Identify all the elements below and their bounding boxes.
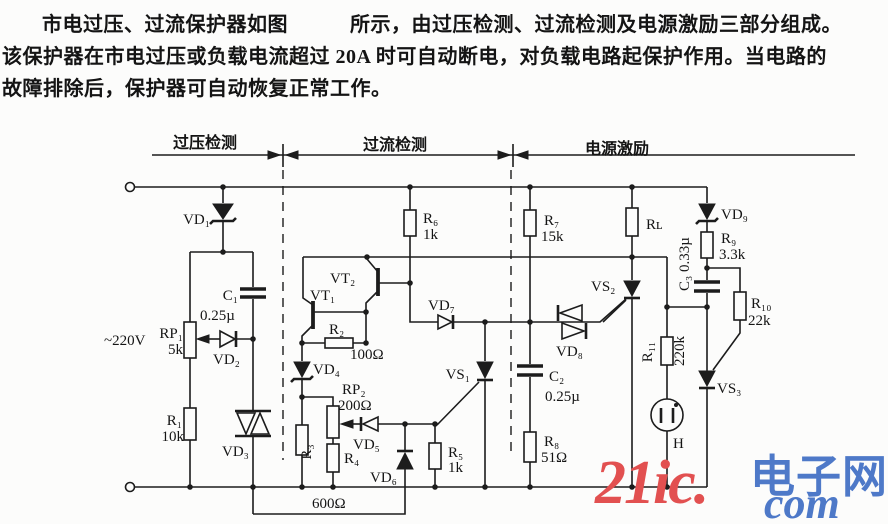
r10-resistor <box>734 292 746 320</box>
label-rp1: RP₁ <box>159 326 183 342</box>
label-vd5: VD₅ <box>353 437 380 453</box>
label-vd1: VD₁ <box>183 212 210 228</box>
arrow-right-icon <box>498 151 510 159</box>
excitation-section: R₇ 15k C₂ 0.25µ R₈ 51Ω VD₈ VS₂ Rʟ R₁₁ 22… <box>517 187 771 487</box>
vd5-diode-icon <box>363 417 378 431</box>
vd2-diode-icon <box>220 331 235 347</box>
overvoltage-section: VD₁ ~220V RP₁ 5k C₁ 0.25µ VD₂ R₁ 10k VD₃ <box>104 187 271 487</box>
rp1-potentiometer <box>184 322 196 358</box>
label-r3: R₃ <box>299 444 315 459</box>
r1-resistor <box>184 408 196 440</box>
label-r5-value: 1k <box>448 460 464 476</box>
label-shunt: 600Ω <box>312 496 346 512</box>
c3-capacitor <box>694 282 720 291</box>
vd7-diode-icon <box>438 315 452 329</box>
input-terminal-top <box>126 183 135 192</box>
rp1-wiper-arrow-icon <box>197 335 209 343</box>
label-r10-value: 22k <box>748 313 771 329</box>
label-vd4: VD₄ <box>313 362 340 378</box>
section-label-overvoltage: 过压检测 <box>173 133 237 152</box>
label-r6-value: 1k <box>423 227 439 243</box>
c1-capacitor <box>240 289 266 297</box>
arrow-left-icon <box>516 151 528 159</box>
rl-resistor <box>626 208 638 236</box>
rp2-wiper-arrow-icon <box>341 420 353 428</box>
label-rl: Rʟ <box>646 217 662 233</box>
scanned-page: 市电过压、过流保护器如图所示，由过压检测、过流检测及电源激励三部分组成。 该保护… <box>0 0 888 524</box>
label-vd8: VD₈ <box>556 344 583 360</box>
label-r9-value: 3.3k <box>719 247 746 263</box>
vs2-thyristor-icon <box>624 281 640 296</box>
label-vs3: VS₃ <box>717 381 741 397</box>
label-vt1: VT₁ <box>310 288 335 304</box>
label-r1: R₁ <box>167 413 182 429</box>
label-r9: R₉ <box>721 231 736 247</box>
label-vd7: VD₇ <box>428 298 455 314</box>
section-label-excitation: 电源激励 <box>585 139 649 158</box>
r9-resistor <box>701 232 713 258</box>
label-vd9: VD₉ <box>721 207 748 223</box>
label-r7: R₇ <box>544 213 559 229</box>
r8-resistor <box>524 432 536 462</box>
label-r11-value: 220k <box>672 336 688 367</box>
r2-resistor <box>325 338 353 348</box>
r7-resistor <box>524 210 536 236</box>
label-r10: R₁₀ <box>751 296 771 312</box>
watermark-tld: com <box>764 478 840 524</box>
vd8-diac-icon <box>562 323 584 339</box>
label-rp2: RP₂ <box>342 382 366 398</box>
label-c2-value: 0.25µ <box>545 389 580 405</box>
label-r11: R₁₁ <box>640 342 656 362</box>
label-r6: R₆ <box>423 211 438 227</box>
label-rp2-value: 200Ω <box>338 398 372 414</box>
label-vt2: VT₂ <box>330 271 355 287</box>
label-vd6: VD₆ <box>370 470 397 486</box>
label-r5: R₅ <box>448 445 463 461</box>
label-r4: R₄ <box>344 451 359 467</box>
label-r1-value: 10k <box>162 429 185 445</box>
section-label-overcurrent: 过流检测 <box>363 135 427 154</box>
label-c1-value: 0.25µ <box>200 308 235 324</box>
label-vs1: VS₁ <box>446 367 470 383</box>
label-c2: C₂ <box>549 369 564 385</box>
arrow-right-icon <box>268 151 280 159</box>
arrow-left-icon <box>286 151 298 159</box>
vd7-vd8-wire <box>453 299 626 322</box>
label-r8: R₈ <box>544 434 559 450</box>
label-vs2: VS₂ <box>591 279 615 295</box>
vs1-thyristor-icon <box>477 362 493 378</box>
watermark-brand: 21ic. <box>595 448 707 519</box>
r4-resistor <box>327 444 339 472</box>
r6-resistor <box>404 210 416 236</box>
vd9-zener-icon <box>699 204 715 219</box>
c2-capacitor <box>517 366 543 375</box>
label-r2: R₂ <box>329 322 344 338</box>
vd8-diac-icon <box>560 305 582 321</box>
label-vd2: VD₂ <box>213 352 240 368</box>
label-r8-value: 51Ω <box>541 450 567 466</box>
label-r7-value: 15k <box>541 229 564 245</box>
neon-lamp-icon <box>651 399 683 431</box>
label-c3: C₃ 0.33µ <box>677 237 693 291</box>
label-c1: C₁ <box>223 288 238 304</box>
vd1-zener-icon <box>213 204 233 219</box>
vd6-zener-icon <box>397 453 413 469</box>
label-r2-value: 100Ω <box>350 347 384 363</box>
neon-lamp-electrodes <box>661 408 673 423</box>
input-terminal-bottom <box>126 483 135 492</box>
label-vd3: VD₃ <box>222 444 249 460</box>
neon-lamp-dot <box>674 403 678 407</box>
label-supply: ~220V <box>104 333 146 349</box>
r5-resistor <box>429 443 441 469</box>
label-rp1-value: 5k <box>168 342 184 358</box>
vt2-leads <box>366 259 410 312</box>
vs3-thyristor-icon <box>699 371 715 386</box>
vd4-zener-icon <box>294 362 310 377</box>
